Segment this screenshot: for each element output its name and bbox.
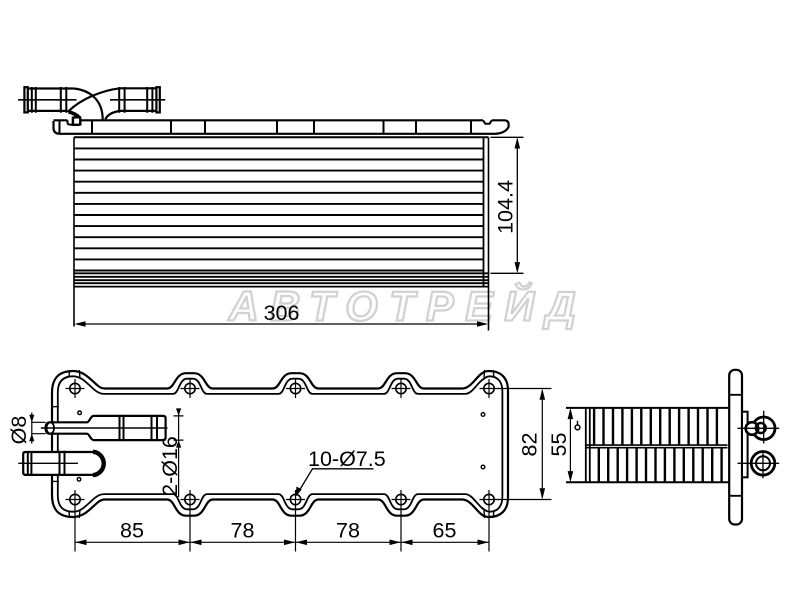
svg-text:2-Ø16: 2-Ø16 bbox=[158, 436, 182, 496]
svg-text:65: 65 bbox=[433, 519, 457, 543]
svg-text:85: 85 bbox=[120, 519, 144, 543]
svg-text:10-Ø7.5: 10-Ø7.5 bbox=[308, 447, 386, 471]
svg-text:55: 55 bbox=[547, 433, 571, 457]
svg-text:306: 306 bbox=[264, 301, 300, 325]
svg-text:82: 82 bbox=[518, 433, 542, 457]
svg-text:78: 78 bbox=[336, 519, 360, 543]
svg-text:78: 78 bbox=[231, 519, 255, 543]
svg-text:Ø8: Ø8 bbox=[7, 416, 31, 445]
svg-text:104.4: 104.4 bbox=[493, 180, 517, 234]
